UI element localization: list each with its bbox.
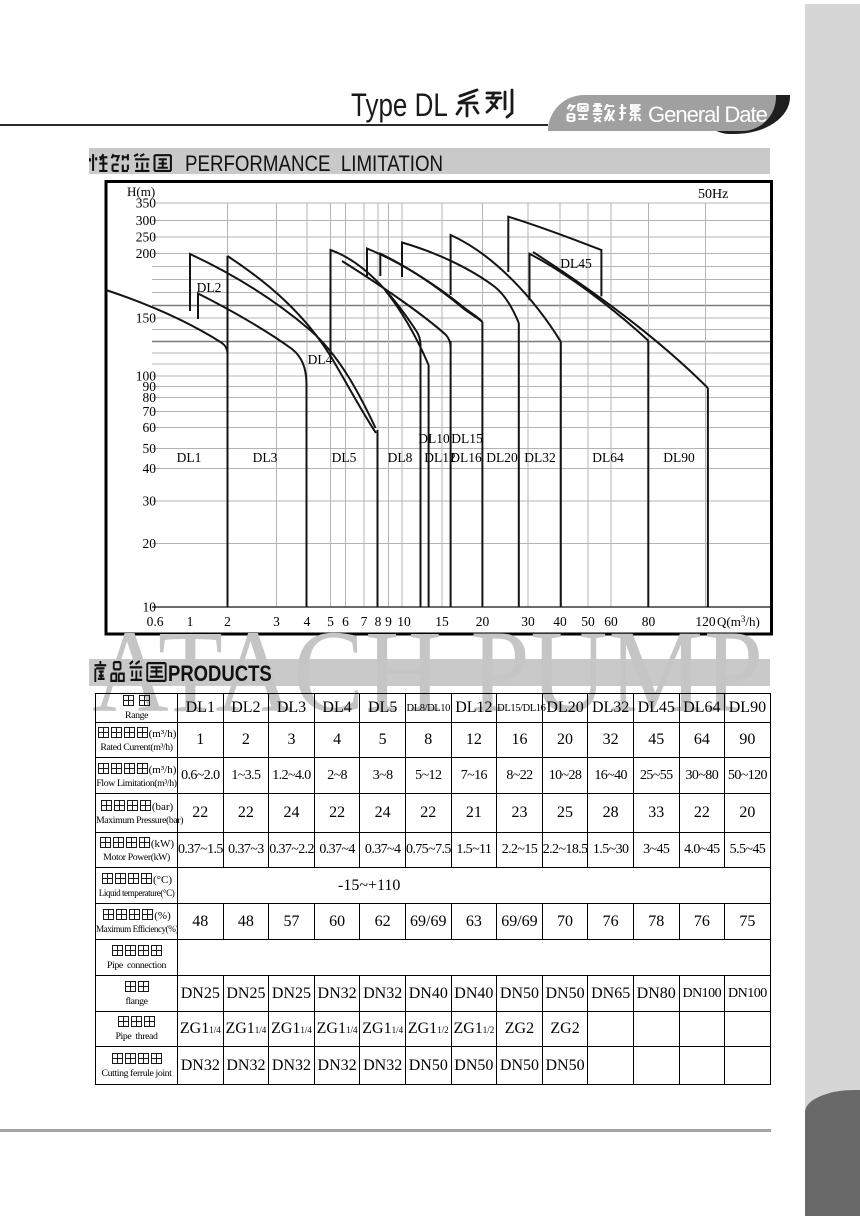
svg-text:DL32: DL32 xyxy=(524,450,556,465)
svg-text:200: 200 xyxy=(136,246,157,261)
svg-text:DL15: DL15 xyxy=(451,431,483,446)
svg-text:DL90: DL90 xyxy=(663,450,695,465)
svg-text:DL64: DL64 xyxy=(592,450,624,465)
svg-text:300: 300 xyxy=(136,213,157,228)
svg-text:80: 80 xyxy=(143,390,157,405)
svg-text:60: 60 xyxy=(143,420,157,435)
svg-text:H(m): H(m) xyxy=(127,184,155,199)
svg-text:50Hz: 50Hz xyxy=(698,187,728,202)
svg-text:DL10: DL10 xyxy=(418,431,450,446)
svg-text:DL2: DL2 xyxy=(197,280,222,295)
svg-text:DL20: DL20 xyxy=(486,450,518,465)
svg-text:DL16: DL16 xyxy=(450,450,482,465)
svg-text:DL4: DL4 xyxy=(308,352,333,367)
svg-text:20: 20 xyxy=(143,536,157,551)
svg-text:DL5: DL5 xyxy=(332,450,357,465)
svg-text:150: 150 xyxy=(136,311,157,326)
svg-text:30: 30 xyxy=(143,494,157,509)
svg-text:70: 70 xyxy=(143,404,157,419)
svg-text:DL8: DL8 xyxy=(388,450,413,465)
svg-text:DL45: DL45 xyxy=(560,256,592,271)
svg-text:DL3: DL3 xyxy=(253,450,278,465)
svg-text:250: 250 xyxy=(136,230,157,245)
svg-text:50: 50 xyxy=(143,441,157,456)
svg-text:40: 40 xyxy=(143,461,157,476)
svg-text:DL1: DL1 xyxy=(177,450,202,465)
